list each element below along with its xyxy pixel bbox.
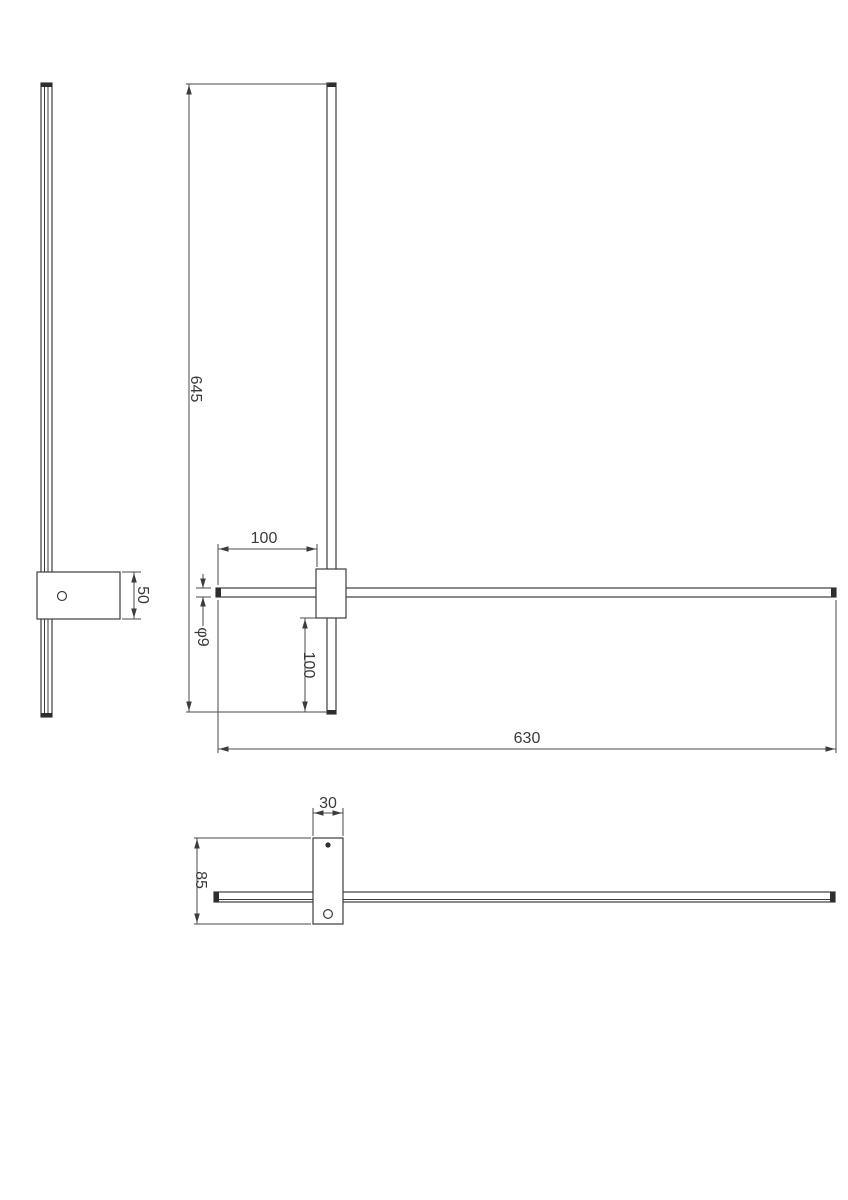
dimension-label-top-bracket-depth: 85 — [192, 871, 209, 889]
dimension-label-top-bracket-width: 30 — [319, 795, 337, 812]
top-tube-left-cap — [214, 892, 219, 902]
side-rod-bottom-cap — [41, 713, 52, 717]
dimension-side-bracket-height: 50 — [122, 572, 151, 619]
wall-lamp-technical-drawing: 50 645 — [0, 0, 848, 1200]
side-view: 50 — [37, 83, 151, 717]
dimension-rod-bottom-extension: 100 — [300, 618, 317, 712]
top-bracket-screw-dot — [325, 842, 330, 847]
dimension-label-tube-length: 630 — [514, 730, 541, 747]
front-view: 645 100 φ9 100 — [186, 83, 836, 753]
top-tube-right-cap — [830, 892, 835, 902]
top-view-tube — [214, 892, 835, 902]
dimension-label-front-height: 645 — [187, 376, 204, 403]
dimension-top-bracket-depth: 85 — [192, 838, 311, 924]
dimension-tube-diameter: φ9 — [194, 574, 211, 647]
front-view-bracket — [316, 569, 346, 618]
dimension-label-tube-left-offset: 100 — [251, 530, 278, 547]
side-bracket-mounting-hole — [58, 592, 67, 601]
front-view-horizontal-tube — [216, 588, 836, 597]
front-rod-bottom-cap — [327, 710, 336, 714]
front-tube-right-cap — [831, 588, 836, 597]
top-view: 30 85 — [192, 795, 835, 924]
dimension-label-side-bracket-height: 50 — [134, 586, 151, 604]
side-view-bracket — [37, 572, 120, 619]
dimension-tube-left-offset: 100 — [218, 530, 317, 585]
dimension-top-bracket-width: 30 — [313, 795, 343, 836]
side-rod-top-cap — [41, 83, 52, 87]
front-tube-left-cap — [216, 588, 221, 597]
top-bracket-mounting-hole — [324, 910, 333, 919]
technical-drawing-page: 50 645 — [0, 0, 848, 1200]
dimension-label-rod-bottom-extension: 100 — [300, 652, 317, 679]
side-view-rod — [41, 83, 52, 717]
dimension-label-tube-diameter: φ9 — [194, 627, 211, 646]
front-view-vertical-rod — [327, 83, 336, 714]
